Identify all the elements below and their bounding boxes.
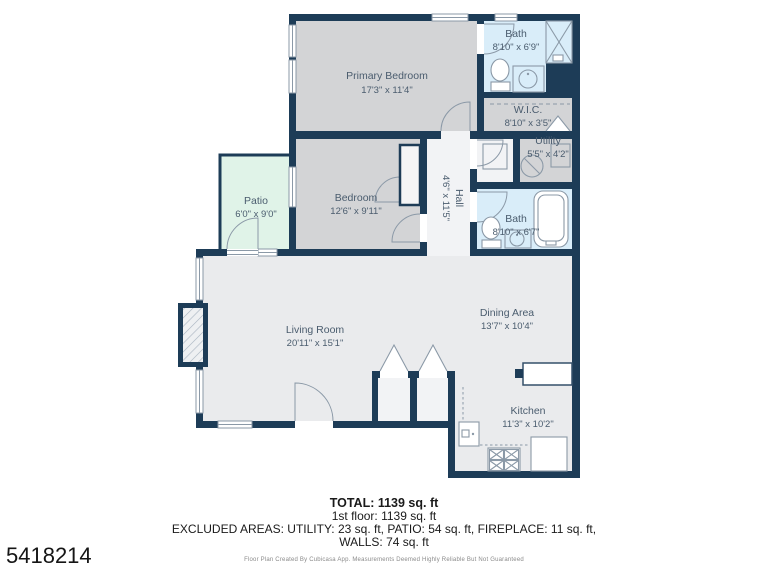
living-room-dims: 20'11" x 15'1" <box>287 338 344 349</box>
wall-hall-east-b <box>470 222 477 249</box>
bath-mid-label: Bath <box>505 213 527 225</box>
bedroom-dims: 12'6" x 9'11" <box>330 206 381 217</box>
counter-post <box>515 369 523 378</box>
stove-burners <box>490 450 519 471</box>
door-opening <box>470 192 477 222</box>
patio-dims: 6'0" x 9'0" <box>235 209 277 220</box>
kitchen-dims: 11'3" x 10'2" <box>502 419 553 430</box>
wall-bath-top-south <box>484 92 546 98</box>
floor-plan-page: Primary Bedroom 17'3" x 11'4" Bath 8'10"… <box>0 0 768 576</box>
hall-label: Hall <box>453 189 465 207</box>
shower-drain-icon <box>553 55 563 61</box>
bath-top-dims: 8'10" x 6'9" <box>493 42 540 53</box>
bedroom-label: Bedroom <box>335 192 378 204</box>
fireplace <box>178 303 208 367</box>
primary-bedroom-dims: 17'3" x 11'4" <box>361 85 412 96</box>
hall-closet-2-floor <box>417 378 448 421</box>
door-opening <box>470 139 477 169</box>
wall-primary-south-b <box>470 131 580 139</box>
wall-bath-top-west-b <box>477 54 484 131</box>
kitchen-label: Kitchen <box>510 405 545 417</box>
bath-mid-dims: 8'10" x 6'7" <box>493 227 540 238</box>
wall-living-south-b <box>333 421 455 428</box>
living-room-label: Living Room <box>286 324 345 336</box>
toilet-icon <box>491 59 509 81</box>
door-opening <box>441 131 470 139</box>
dining-area-dims: 13'7" x 10'4" <box>481 321 533 332</box>
wall-closet-2-east <box>448 378 455 421</box>
bedroom-closet <box>400 145 420 205</box>
closet-opening <box>419 371 447 378</box>
primary-bedroom-label: Primary Bedroom <box>346 70 428 82</box>
patio-label: Patio <box>244 195 268 207</box>
disclaimer-text: Floor Plan Created By Cubicasa App. Meas… <box>0 554 768 567</box>
area-summary: TOTAL: 1139 sq. ft 1st floor: 1139 sq. f… <box>0 497 768 567</box>
wall-closet-divider <box>410 378 417 421</box>
wall-closet-1-west <box>372 378 378 421</box>
walls-area-text: WALLS: 74 sq. ft <box>0 536 768 549</box>
dining-area-label: Dining Area <box>480 307 534 319</box>
utility-dims: 5'5" x 4'2" <box>527 149 569 160</box>
closet-opening <box>380 371 408 378</box>
door-opening <box>477 24 484 54</box>
wall-right <box>572 14 580 478</box>
toilet-tank-icon <box>491 82 510 91</box>
wall-hall-east-a <box>470 169 477 192</box>
utility-label: Utility <box>535 135 561 147</box>
wall-kitchen-south <box>448 471 580 478</box>
wall-utility-west <box>513 139 520 182</box>
wall-bath-mid-south <box>470 249 580 256</box>
wall-kitchen-west <box>448 421 455 478</box>
bath-top-label: Bath <box>505 28 527 40</box>
tub-faucet-icon <box>546 241 556 245</box>
laundry-closet-floor <box>477 139 513 182</box>
wall-bath-mid-north <box>477 182 580 189</box>
refrigerator-icon <box>531 437 567 471</box>
door-opening <box>420 214 427 242</box>
floor-plan-drawing: Primary Bedroom 17'3" x 11'4" Bath 8'10"… <box>0 0 768 576</box>
wall-primary-south-a <box>289 131 441 139</box>
hall-closet-1-floor <box>378 378 410 421</box>
faucet-dot-icon <box>527 73 529 75</box>
plan-id-number: 5418214 <box>6 543 92 569</box>
wall-shower-block <box>546 63 572 98</box>
wall-living-north-b <box>277 249 427 256</box>
entry-door-opening <box>295 421 333 428</box>
wic-dims: 8'10" x 3'5" <box>505 118 552 129</box>
wic-label: W.I.C. <box>514 104 543 116</box>
fireplace-hatch <box>183 308 203 362</box>
toilet-tank-icon <box>482 240 501 248</box>
kitchen-peninsula-counter <box>523 363 572 385</box>
hall-dims: 4'6" x 11'5" <box>440 175 451 221</box>
